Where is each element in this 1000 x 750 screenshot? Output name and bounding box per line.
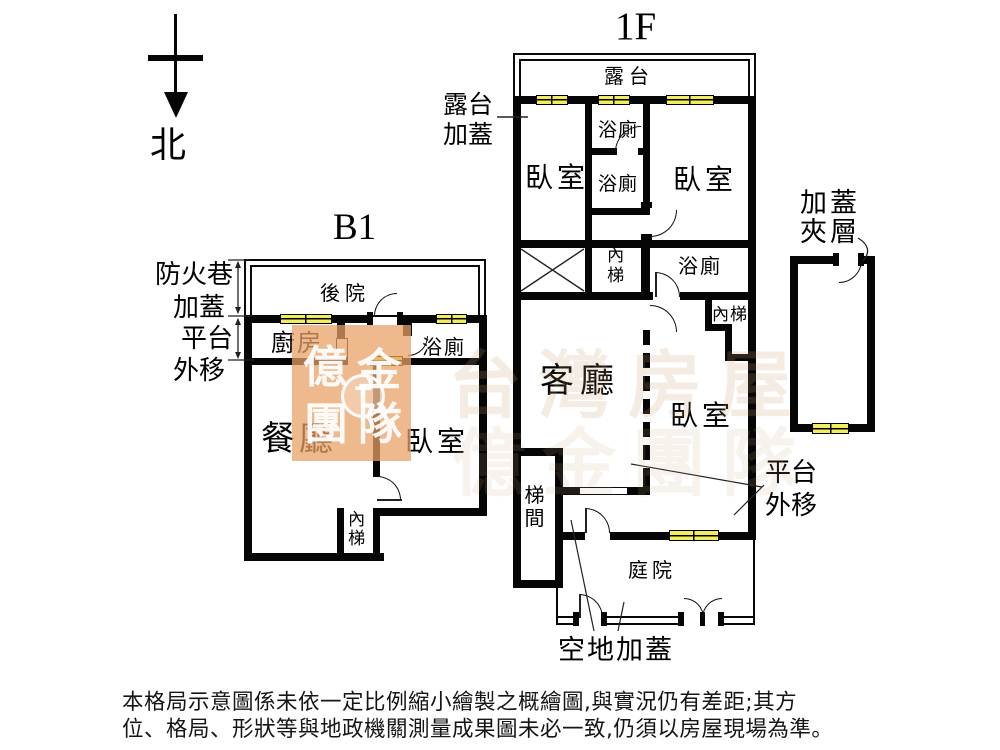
f1-court-line-bottom-c — [722, 616, 755, 625]
north-arrow-head — [164, 92, 188, 118]
f1-bath-wall-left — [585, 104, 592, 300]
north-label: 北 — [150, 116, 186, 168]
watermark-char-1: 億 — [303, 331, 347, 395]
f1-room-courtyard: 庭院 — [628, 554, 676, 583]
disclaimer-line-1: 本格局示意圖係未依一定比例縮小繪製之概繪圖,與實況仍有差距;其方 — [122, 689, 833, 716]
f1-bedroom-right-door-jamb-top — [641, 202, 652, 208]
b1-wall-bottom — [244, 553, 384, 561]
f1-room-bath-inner: 浴廁 — [678, 250, 722, 279]
f1-bath-inner-door-leaf — [655, 272, 657, 297]
f1-room-bath-top: 浴廁 — [598, 115, 638, 142]
f1-court-top-wall-c — [719, 532, 755, 540]
mezzanine-door-arc — [839, 260, 862, 283]
watermark-logo-circle: T — [341, 374, 385, 418]
b1-bedroom-door-leaf — [377, 499, 402, 501]
f1-bedroom-right-door-arc — [650, 210, 677, 237]
f1-bath-inner-door-arc — [655, 272, 680, 297]
f1-bath-mid-bottom-wall — [585, 208, 650, 215]
f1-window-bottom — [669, 530, 719, 541]
f1-court-line-bottom-b — [603, 616, 680, 625]
f1-wall-mid-b-left — [513, 292, 653, 300]
b1-window-top-right — [436, 314, 467, 324]
mezzanine-window — [812, 423, 849, 434]
f1-entry-door-arc — [579, 594, 603, 618]
b1-room-backyard: 後院 — [320, 277, 370, 306]
mezzanine-label-line2: 夾層 — [800, 210, 860, 249]
b1-backyard-door-jamb-left — [367, 312, 373, 325]
disclaimer-line-2: 位、格局、形狀等與地政機關測量成果圖未必一致,仍須以房屋現場為準。 — [122, 716, 833, 743]
f1-window-top-3 — [666, 95, 714, 105]
f1-court-line-left — [556, 540, 558, 625]
f1-ground-cover-label: 空地加蓋 — [558, 628, 674, 667]
f1-room-stairs-lower: 內梯 — [712, 300, 748, 325]
disclaimer-text: 本格局示意圖係未依一定比例縮小繪製之概繪圖,與實況仍有差距;其方 位、格局、形狀… — [122, 689, 833, 743]
b1-title: B1 — [333, 206, 376, 249]
f1-court-top-wall-b — [610, 532, 669, 540]
f1-double-door-arc-right — [702, 598, 722, 618]
f1-room-bedroom-right: 臥室 — [673, 158, 737, 198]
f1-bath-top-wall-a — [585, 148, 617, 155]
f1-wall-mid-b-right — [680, 292, 756, 300]
b1-outside-label-moved: 外移 — [133, 350, 225, 387]
b1-outside-label-firelane: 防火巷 — [141, 254, 233, 291]
watermark-faint-row-2: 億金團隊 — [452, 404, 812, 511]
f1-wall-mid-a — [513, 240, 756, 248]
f1-double-door-arc-left — [684, 598, 704, 618]
f1-entry-door-leaf — [579, 594, 581, 618]
f1-room-stairs-upper: 內梯 — [605, 246, 626, 286]
f1-window-top-1 — [536, 95, 568, 105]
mezzanine-wall-right — [867, 256, 875, 432]
f1-court-top-wall-a — [557, 532, 585, 540]
f1-court-line-right — [753, 540, 755, 625]
watermark-logo-letter: T — [355, 382, 371, 410]
b1-wall-left — [244, 315, 252, 561]
f1-terrace-cover-label-line2: 加蓋 — [443, 115, 493, 151]
b1-bedroom-door-arc — [377, 476, 401, 500]
b1-room-stairs: 內梯 — [346, 511, 367, 549]
f1-room-bedroom-left: 臥室 — [525, 156, 589, 196]
f1-room-bath-mid: 浴廁 — [598, 169, 638, 196]
floor-plan-image: 北 B1 1F 後院 廚房 浴廁 餐廳 臥室 內梯 防火巷 加蓋 平台 外移 露… — [0, 0, 1000, 750]
f1-window-top-2 — [598, 95, 630, 105]
f1-room-terrace: 露台 — [604, 60, 654, 89]
f1-title: 1F — [615, 4, 656, 49]
f1-bedroom-right-wall — [643, 104, 650, 207]
north-arrow-crossbar — [148, 55, 203, 61]
f1-corridor-door-leaf — [585, 508, 587, 533]
f1-corridor-door-arc — [585, 508, 610, 533]
